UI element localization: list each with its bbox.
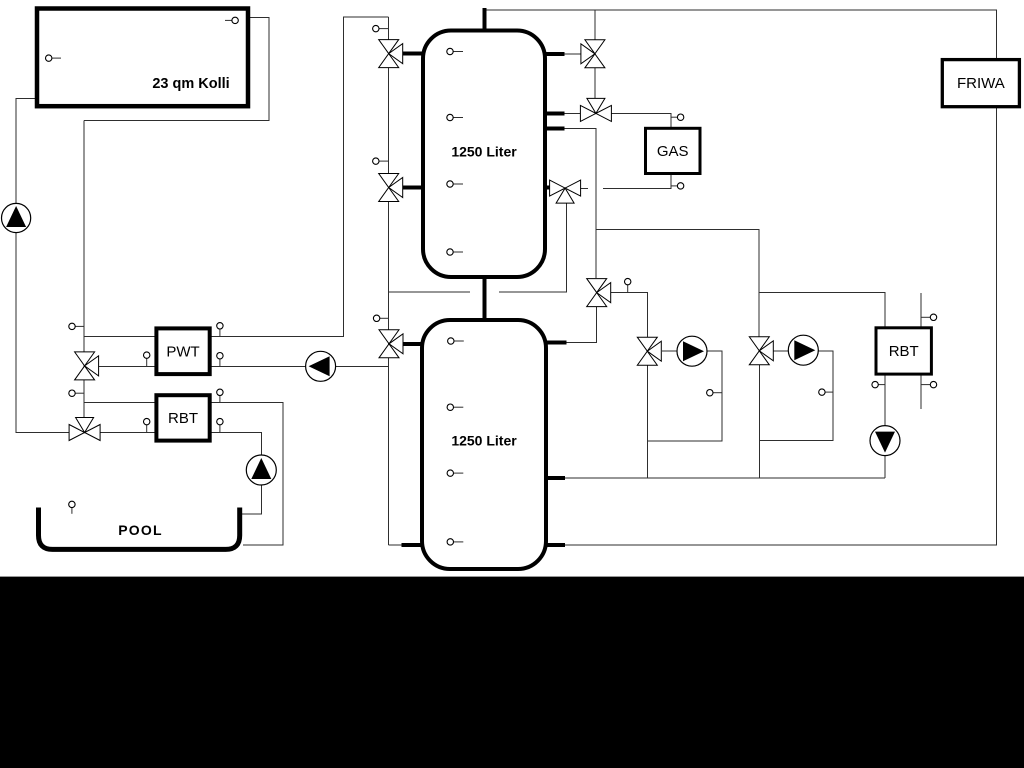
svg-text:GAS: GAS [657, 143, 689, 160]
svg-text:23 qm Kolli: 23 qm Kolli [152, 76, 229, 92]
svg-text:1250 Liter: 1250 Liter [451, 144, 517, 160]
svg-text:1250 Liter: 1250 Liter [451, 433, 517, 449]
svg-text:PWT: PWT [166, 343, 199, 360]
svg-text:RBT: RBT [168, 410, 198, 427]
svg-text:FRIWA: FRIWA [957, 75, 1005, 92]
svg-text:RBT: RBT [889, 343, 919, 360]
svg-text:POOL: POOL [118, 522, 162, 538]
